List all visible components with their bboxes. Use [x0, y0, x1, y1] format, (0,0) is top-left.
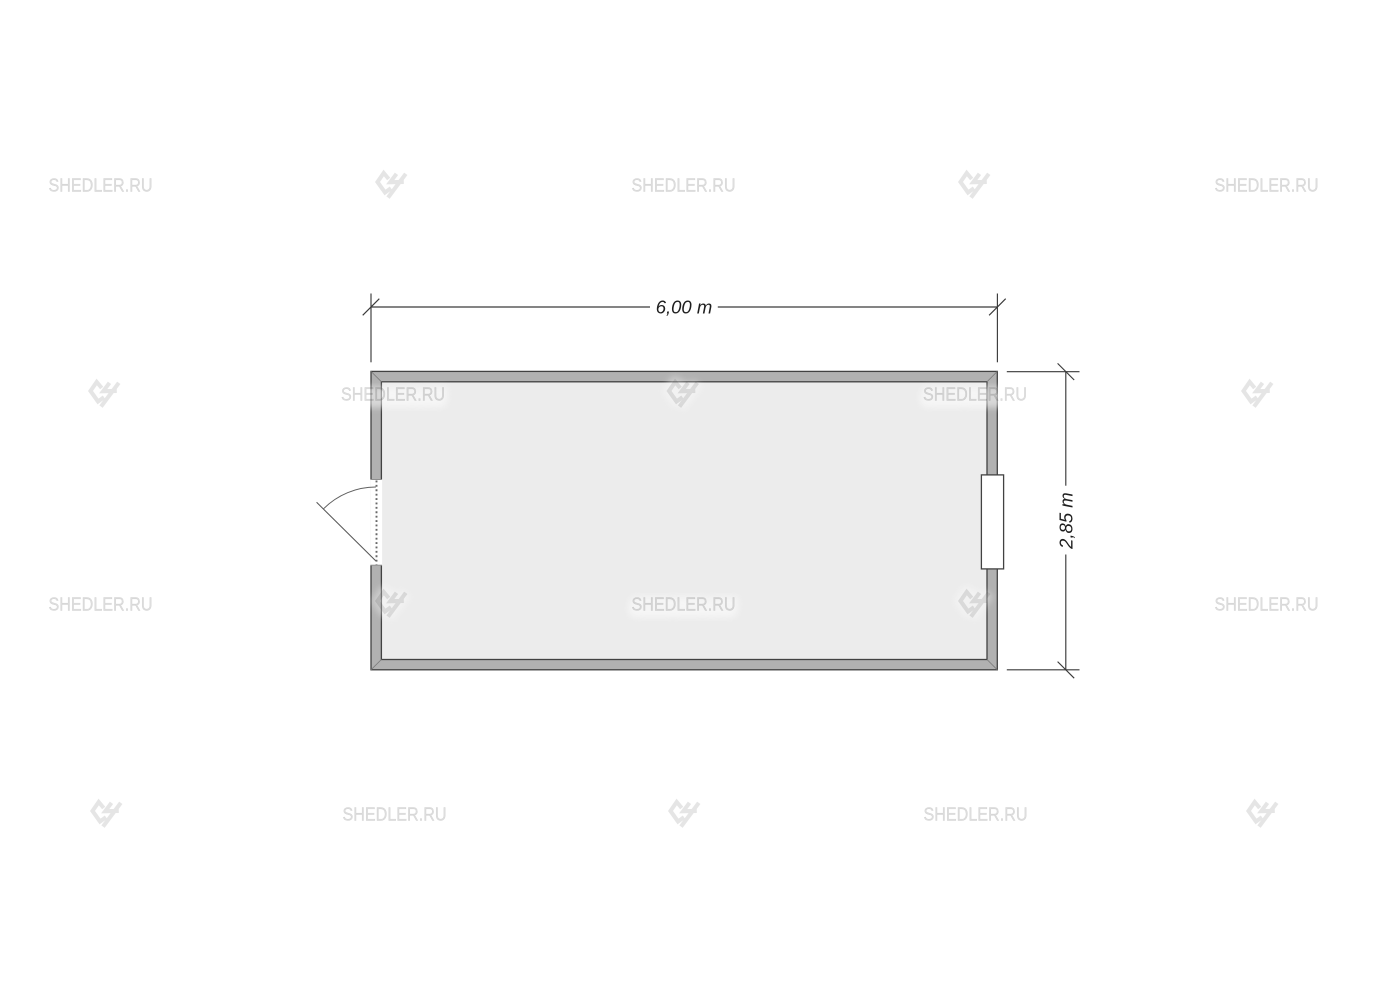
svg-text:6,00 m: 6,00 m — [656, 297, 713, 318]
svg-text:2,85 m: 2,85 m — [1055, 492, 1076, 550]
